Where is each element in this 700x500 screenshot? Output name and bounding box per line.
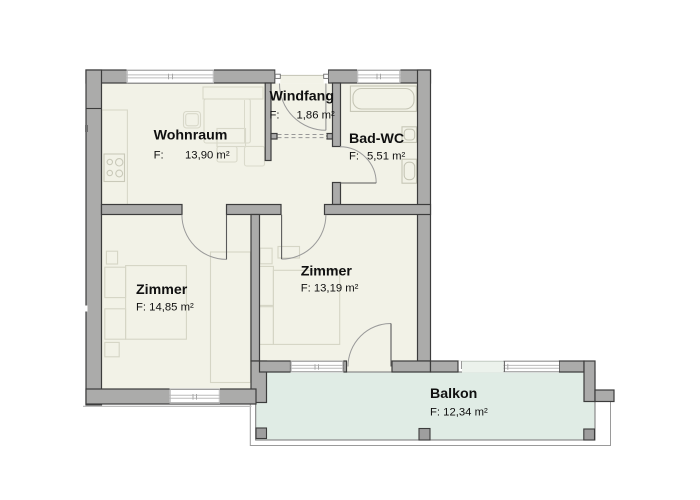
svg-text:5,51 m²: 5,51 m² — [367, 151, 406, 163]
svg-text:F: 14,85 m²: F: 14,85 m² — [136, 302, 194, 314]
svg-text:F:: F: — [349, 151, 359, 163]
svg-text:Balkon: Balkon — [430, 386, 477, 402]
svg-text:1,86 m²: 1,86 m² — [297, 110, 336, 122]
svg-text:Zimmer: Zimmer — [301, 264, 353, 280]
svg-text:F:: F: — [270, 110, 280, 122]
svg-text:F:: F: — [154, 150, 164, 162]
svg-text:F: 13,19 m²: F: 13,19 m² — [301, 283, 359, 295]
svg-text:Windfang: Windfang — [270, 89, 335, 105]
svg-text:13,90 m²: 13,90 m² — [185, 150, 230, 162]
svg-text:F: 12,34 m²: F: 12,34 m² — [430, 407, 488, 419]
svg-text:Wohnraum: Wohnraum — [154, 128, 228, 144]
svg-text:Zimmer: Zimmer — [136, 282, 188, 298]
svg-text:Bad-WC: Bad-WC — [349, 131, 404, 147]
